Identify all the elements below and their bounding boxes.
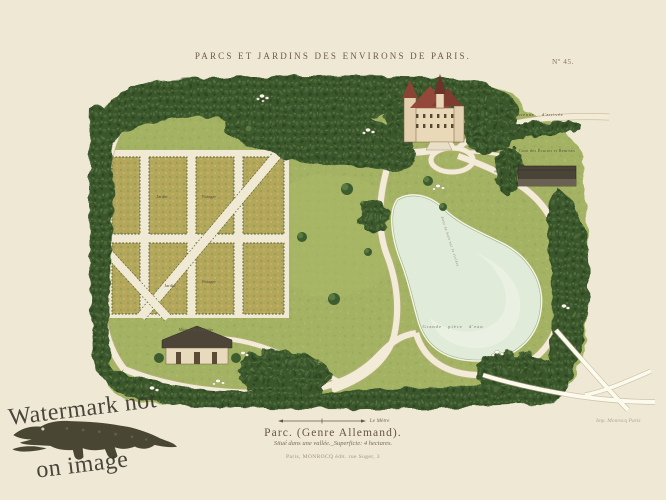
stables-building <box>518 166 576 186</box>
label-potager-top: Potager <box>202 194 216 199</box>
printer-imprint: Imp. Monrocq Paris <box>596 418 641 424</box>
label-potager-bottom: Potager <box>202 279 216 284</box>
scale-line <box>277 417 367 425</box>
label-jardin-bottom: Jardin <box>165 283 177 288</box>
kitchen-garden <box>103 149 289 318</box>
scale-label: Le Mètre <box>370 418 390 424</box>
label-maison: Maison du Jardinier <box>179 327 214 332</box>
label-cour: Cour des Écuries et Remises <box>519 148 575 153</box>
label-jardin-top: Jardin <box>157 194 169 199</box>
label-piece-eau: Grande pièce d'eau <box>422 324 483 329</box>
label-avenue: Avenue d'arrivée <box>517 112 564 117</box>
